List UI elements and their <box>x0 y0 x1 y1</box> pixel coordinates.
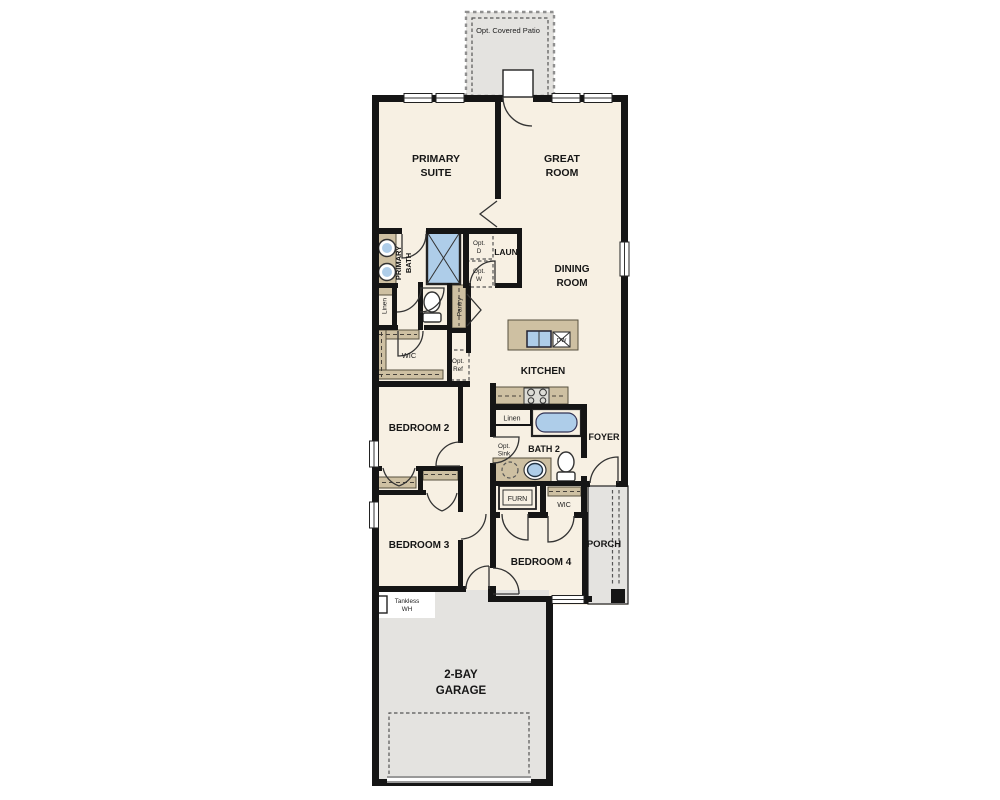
label-porch: PORCH <box>587 539 621 550</box>
label-primary-suite-2: SUITE <box>421 167 452 179</box>
label-opt-sink-2: Sink <box>498 451 511 458</box>
wall-segment <box>392 283 397 330</box>
wall-segment <box>490 383 496 406</box>
primary-sink-2-basin <box>382 267 392 277</box>
label-primary-wic: WIC <box>402 351 417 360</box>
wall-segment <box>372 586 466 592</box>
label-great-room-2: ROOM <box>546 167 579 179</box>
bath2-toilet-tank <box>557 472 575 481</box>
label-opt-sink-1: Opt. <box>498 443 510 450</box>
wall-segment <box>546 596 553 786</box>
wall-segment <box>372 228 402 234</box>
label-opt-washer-2: W <box>476 276 482 283</box>
wall-segment <box>490 594 496 602</box>
label-laundry: LAUN <box>494 247 518 257</box>
wall-segment <box>582 512 588 604</box>
label-linen-primary: Linen <box>382 298 389 314</box>
window <box>404 94 432 103</box>
label-great-room: GREAT <box>544 153 581 165</box>
label-dishwasher: DW <box>557 338 567 344</box>
label-foyer: FOYER <box>588 432 620 442</box>
label-bedroom3: BEDROOM 3 <box>389 540 450 551</box>
label-opt-ref-2: Ref <box>453 366 463 373</box>
wall-segment <box>621 95 628 485</box>
label-garage-2: GARAGE <box>436 685 487 697</box>
window <box>620 242 629 276</box>
wall-segment <box>490 512 500 518</box>
wall-segment <box>540 481 546 512</box>
wall-segment <box>488 596 554 602</box>
label-opt-dryer-2: D <box>477 248 482 255</box>
label-primary-bath-2: BATH <box>404 253 413 273</box>
label-primary-bath-1: PRIMARY <box>394 246 403 280</box>
label-bath2: BATH 2 <box>528 444 560 454</box>
label-bedroom2: BEDROOM 2 <box>389 423 450 434</box>
label-bedroom4: BEDROOM 4 <box>511 557 572 568</box>
wall-segment <box>490 481 586 486</box>
wall-segment <box>528 512 548 518</box>
primary-sink-1-basin <box>382 243 392 253</box>
wall-segment <box>466 283 471 353</box>
wall-segment <box>495 283 522 288</box>
window <box>552 596 584 604</box>
label-dining: DINING <box>555 264 590 275</box>
label-opt-dryer-1: Opt. <box>473 240 485 247</box>
label-dining-2: ROOM <box>556 278 587 289</box>
label-bed4-wic: WIC <box>557 502 571 509</box>
wall-segment <box>372 490 426 495</box>
window <box>370 502 379 528</box>
bath2-sink <box>528 464 543 477</box>
floor-plan-page: Opt. Covered Patio PRIMARY SUITE GREAT R… <box>0 0 1000 800</box>
wall-segment <box>517 228 522 286</box>
window <box>584 94 612 103</box>
label-pantry-text: Pantry <box>457 297 464 317</box>
porch-column <box>611 589 625 603</box>
label-primary-suite: PRIMARY <box>412 153 460 165</box>
label-pantry: Pantry <box>457 297 464 317</box>
wall-segment <box>418 466 423 492</box>
label-tankless-1: Tankless <box>395 598 420 605</box>
wall-segment <box>424 325 452 330</box>
window <box>552 94 580 103</box>
wall-segment <box>463 228 469 288</box>
garage-door <box>387 776 531 783</box>
tub <box>536 413 577 432</box>
window <box>370 441 379 467</box>
patio-door-recess <box>503 70 533 97</box>
label-linen-primary-text: Linen <box>382 298 389 314</box>
wall-segment <box>416 466 463 471</box>
label-opt-ref-1: Opt. <box>452 358 464 365</box>
label-kitchen: KITCHEN <box>521 366 565 377</box>
wall-segment <box>372 381 470 387</box>
wall-segment <box>581 404 587 458</box>
primary-toilet-tank <box>423 313 441 322</box>
window <box>436 94 464 103</box>
label-opt-washer-1: Opt. <box>473 268 485 275</box>
wall-segment <box>458 386 463 443</box>
wall-segment <box>495 95 501 199</box>
bath2-toilet-bowl <box>558 452 574 472</box>
label-furnace: FURN <box>508 496 527 503</box>
label-garage-1: 2-BAY <box>444 669 478 681</box>
wall-segment <box>458 540 463 590</box>
label-patio: Opt. Covered Patio <box>476 26 540 35</box>
wall-segment <box>447 325 452 387</box>
label-tankless-2: WH <box>402 606 413 613</box>
floor-plan-drawing: Opt. Covered Patio PRIMARY SUITE GREAT R… <box>0 0 1000 800</box>
wall-segment <box>426 228 522 234</box>
wall-segment <box>458 466 463 512</box>
wall-segment <box>581 481 590 487</box>
label-linen-bath2: Linen <box>503 416 520 423</box>
